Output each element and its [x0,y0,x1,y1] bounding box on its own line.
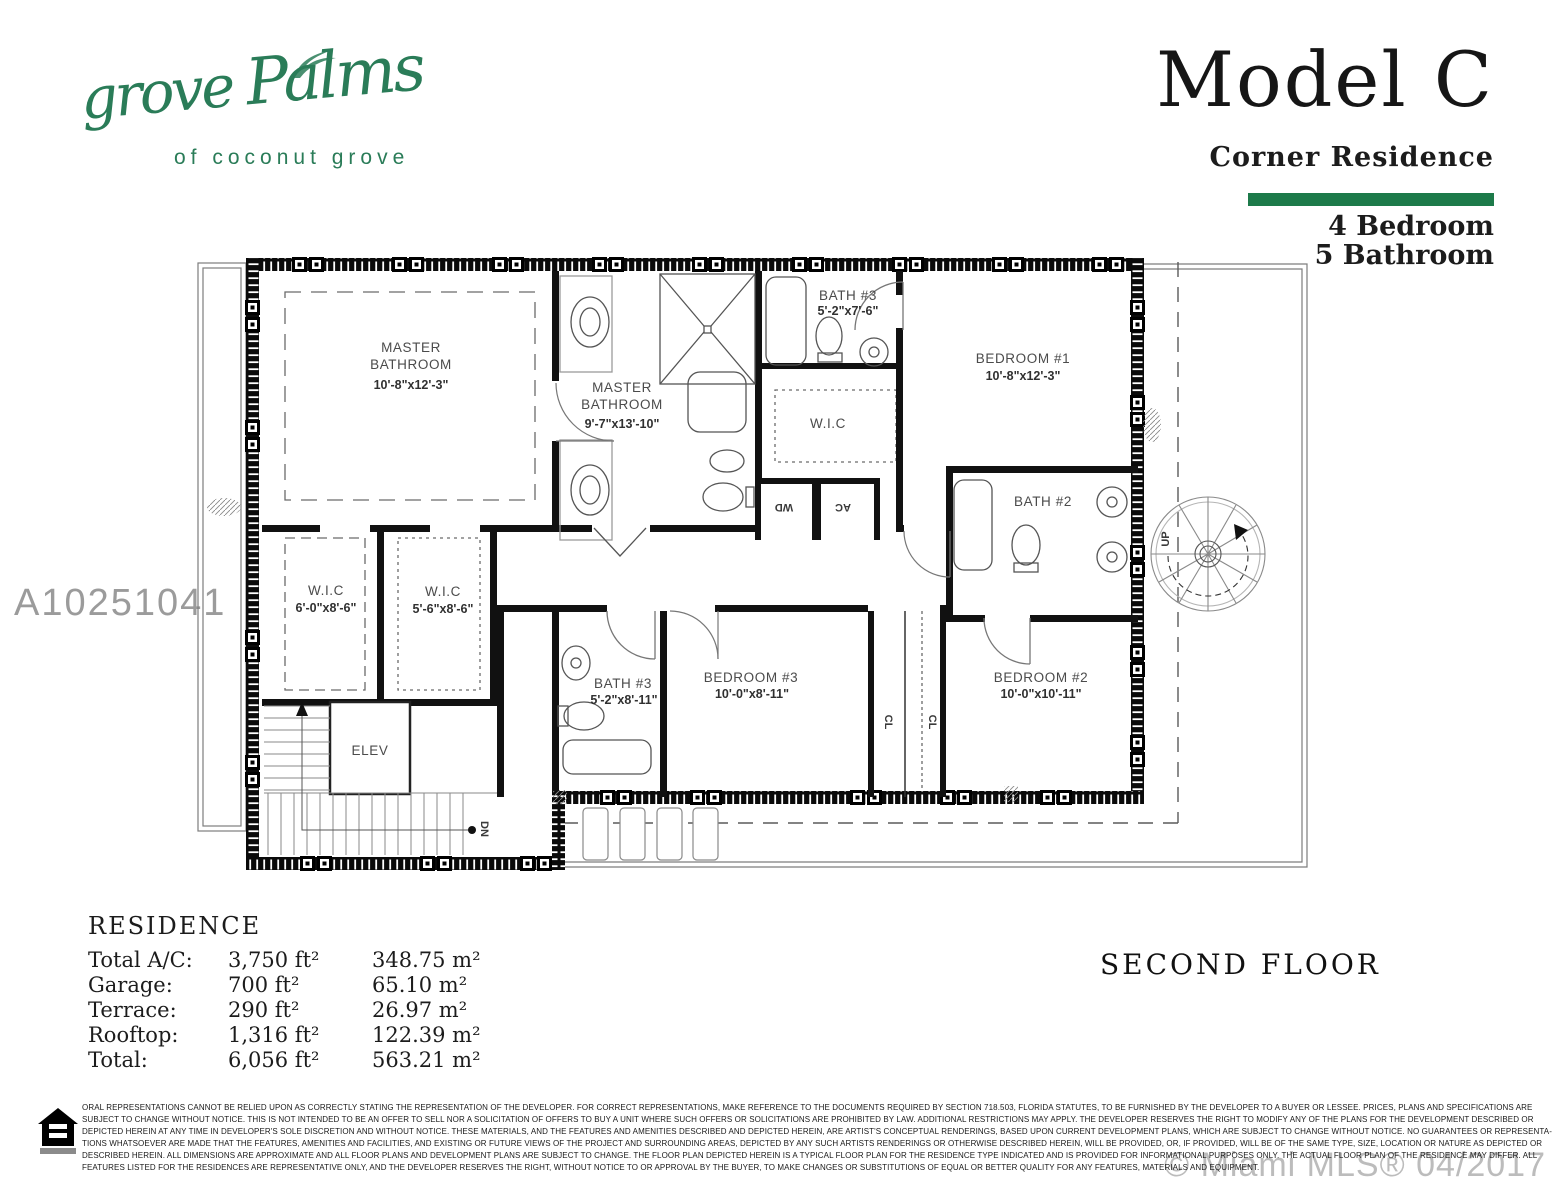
room-name: W.I.C [810,416,846,431]
sink-symbol [1097,487,1127,517]
lounge-chairs [583,808,718,860]
room-name: BEDROOM #3 [704,670,799,685]
sink-symbol [1097,542,1127,572]
closet-label: CL [926,715,938,730]
room-name: BATH #2 [1014,494,1072,509]
sink-symbol [860,338,888,366]
spiral-staircase [1151,497,1265,611]
tub-symbol [954,480,992,570]
room-label-master-bathroom: MASTER BATHROOM 9'-7"x13'-10" [581,380,663,431]
toilet-symbol [816,317,842,355]
room-dims: 5'-6"x8'-6" [413,602,474,616]
closet-label: CL [882,715,894,730]
room-name: BATHROOM [370,357,452,372]
room-name: BATHROOM [581,397,663,412]
room-name: BATH #3 [819,288,877,303]
tub-symbol [563,740,651,774]
room-dims: 10'-0"x10'-11" [1000,687,1081,701]
room-name: MASTER [381,340,441,355]
room-dims: 10'-8"x12'-3" [986,369,1061,383]
room-dims: 10'-0"x8'-11" [715,687,789,701]
toilet-symbol [703,483,743,511]
stair-guide-dot [468,826,476,834]
room-dims: 9'-7"x13'-10" [585,417,660,431]
ac-closet-label: AC [835,501,851,513]
tub-symbol [688,372,746,432]
room-label-elevator: ELEV [352,743,389,758]
stairs-down-label: DN [478,821,490,837]
sink-symbol [562,646,590,680]
room-name: W.I.C [308,583,344,598]
room-label-wic-master-left: W.I.C 6'-0"x8'-6" [296,583,357,615]
sink-symbol [571,297,609,347]
room-label-bedroom-3: BEDROOM #3 10'-0"x8'-11" [704,670,799,701]
tub-symbol [766,277,806,365]
room-name: BATH #3 [594,676,652,691]
room-label-wic-master-right: W.I.C 5'-6"x8'-6" [413,584,474,616]
washer-dryer-label: WD [775,501,793,513]
room-name: ELEV [352,743,389,758]
room-label-bath-3-lower: BATH #3 5'-2"x8'-11" [590,676,657,707]
room-label-master-bedroom: MASTER BATHROOM 10'-8"x12'-3" [370,340,452,392]
room-label-bath-2: BATH #2 [1014,494,1072,509]
sink-symbol [571,465,609,515]
toilet-symbol [1012,525,1040,565]
room-name: BEDROOM #1 [976,351,1071,366]
room-label-bedroom-2: BEDROOM #2 10'-0"x10'-11" [994,670,1089,701]
room-label-wic-bedroom-1: W.I.C [810,416,846,431]
room-dims: 6'-0"x8'-6" [296,601,357,615]
bidet-symbol [710,450,744,472]
room-label-bath-3-upper: BATH #3 5'-2"x7'-6" [818,288,879,318]
room-name: W.I.C [425,584,461,599]
room-name: MASTER [592,380,652,395]
room-label-bedroom-1: BEDROOM #1 10'-8"x12'-3" [976,351,1071,383]
stairs-up-label: UP [1160,531,1172,546]
floor-plan: MASTER BATHROOM 10'-8"x12'-3" MASTER BAT… [0,0,1552,1200]
room-dims: 5'-2"x7'-6" [818,304,879,318]
room-dims: 10'-8"x12'-3" [374,378,449,392]
room-name: BEDROOM #2 [994,670,1089,685]
room-dims: 5'-2"x8'-11" [590,693,657,707]
